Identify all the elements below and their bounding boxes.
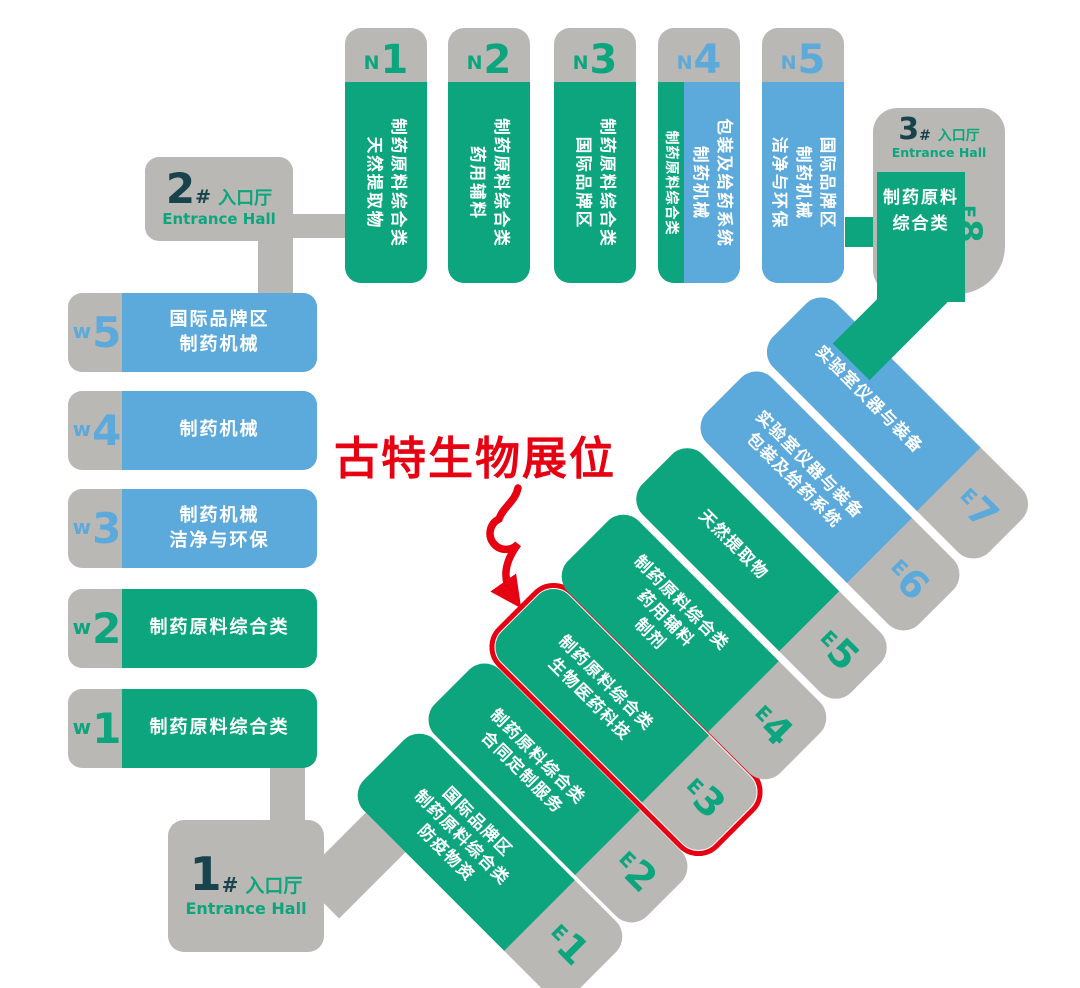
hall-w4-category-1: 制药机械 — [180, 418, 260, 442]
hall-n4-category-1: 包装及给药系统 — [712, 118, 736, 248]
hall-n5-label: N5 — [762, 28, 844, 82]
hall-n5-label-digit: 5 — [798, 43, 826, 77]
hall-w1-categories: 制药原料综合类 — [122, 689, 317, 768]
hall-n3: N3 制药原料综合类 国际品牌区 — [554, 28, 636, 283]
hall-n5-categories: 国际品牌区 制药机械 洁净与环保 — [767, 136, 839, 229]
hall-n4-label: N4 — [658, 28, 740, 82]
entrance-2-hash: # — [195, 188, 211, 207]
corridor-entrance2-to-n1 — [288, 214, 348, 238]
hall-n4-category-2: 制药机械 — [688, 118, 712, 248]
booth-annotation-title: 古特生物展位 — [334, 436, 616, 481]
hall-n3-categories: 制药原料综合类 国际品牌区 — [571, 118, 619, 248]
entrance-1-label-en: Entrance Hall — [185, 899, 306, 918]
hall-w5-categories: 国际品牌区 制药机械 — [122, 293, 317, 372]
hall-w4-label-letter: w — [73, 419, 91, 439]
entrance-hall-2-title: 2# 入口厅 — [166, 170, 272, 208]
hall-w4-label: w4 — [68, 391, 126, 470]
hall-n2-label: N2 — [448, 28, 530, 82]
hall-e8-label-letter: E — [958, 205, 977, 218]
hall-n4-categories: 包装及给药系统 制药机械 — [688, 118, 736, 248]
hall-e8-label: E8 — [954, 198, 1010, 250]
hall-w5-label-letter: w — [73, 321, 91, 341]
hall-w5-label-digit: 5 — [92, 315, 121, 351]
hall-n3-category-1: 制药原料综合类 — [595, 118, 619, 248]
entrance-1-hash: # — [222, 875, 239, 895]
hall-n5-category-1: 国际品牌区 — [815, 136, 839, 229]
hall-n1-category-2: 天然提取物 — [362, 118, 386, 248]
entrance-hall-1: 1# 入口厅 Entrance Hall — [168, 820, 324, 952]
hall-w4-label-digit: 4 — [92, 413, 121, 449]
hall-n2-label-digit: 2 — [484, 43, 512, 77]
hall-n4-label-letter: N — [677, 54, 693, 73]
hall-n1-label-digit: 1 — [381, 43, 409, 77]
hall-n2: N2 制药原料综合类 药用辅料 — [448, 28, 530, 283]
hall-n3-category-2: 国际品牌区 — [571, 118, 595, 248]
hall-e8-category-2: 综合类 — [893, 212, 950, 238]
entrance-1-number: 1 — [190, 854, 222, 895]
entrance-2-label-en: Entrance Hall — [162, 210, 276, 228]
entrance-hall-2: 2# 入口厅 Entrance Hall — [145, 157, 293, 241]
hall-n3-label-digit: 3 — [590, 43, 618, 77]
hall-n3-label: N3 — [554, 28, 636, 82]
hall-w1-label: w1 — [68, 689, 126, 768]
hall-w5-category-1: 国际品牌区 — [170, 308, 270, 332]
corridor-entrance2-to-w5 — [258, 236, 293, 296]
hall-n1-category-1: 制药原料综合类 — [386, 118, 410, 248]
hall-w3-label-digit: 3 — [92, 511, 121, 547]
hall-w1-label-digit: 1 — [92, 711, 121, 747]
entrance-2-label-zh: 入口厅 — [218, 191, 272, 207]
hall-w3-category-1: 制药机械 — [180, 504, 260, 528]
hall-w3-categories: 制药机械 洁净与环保 — [122, 489, 317, 568]
hall-w3-label: w3 — [68, 489, 126, 568]
hall-e5-category-1: 天然提取物 — [694, 506, 773, 585]
hall-w2-categories: 制药原料综合类 — [122, 589, 317, 668]
hall-w5-category-2: 制药机械 — [180, 333, 260, 357]
hall-n1-label-letter: N — [364, 54, 380, 73]
hall-w2: w2 制药原料综合类 — [68, 589, 317, 668]
hall-n4-label-digit: 4 — [694, 43, 722, 77]
hall-n1-categories: 制药原料综合类 天然提取物 — [362, 118, 410, 248]
hall-n4-strip-category: 制药原料综合类 — [661, 130, 681, 235]
hall-n1-label: N1 — [345, 28, 427, 82]
hall-w2-category-1: 制药原料综合类 — [150, 616, 290, 640]
hall-n5-category-3: 洁净与环保 — [767, 136, 791, 229]
entrance-3-number: 3 — [898, 116, 919, 143]
hall-e8-category-1: 制药原料 — [883, 186, 959, 212]
hall-n3-label-letter: N — [573, 54, 589, 73]
entrance-2-number: 2 — [166, 170, 195, 208]
entrance-3-label-zh: 入口厅 — [938, 130, 980, 143]
entrance-1-label-zh: 入口厅 — [245, 878, 302, 895]
entrance-3-label-en: Entrance Hall — [892, 145, 987, 160]
hall-e8-label-digit: 8 — [954, 219, 983, 243]
entrance-hall-1-title: 1# 入口厅 — [190, 854, 303, 895]
hall-w5-label: w5 — [68, 293, 126, 372]
hall-n5-label-letter: N — [781, 54, 797, 73]
hall-n2-category-1: 制药原料综合类 — [489, 118, 513, 248]
hall-w3: w3 制药机械 洁净与环保 — [68, 489, 317, 568]
hall-n2-label-letter: N — [467, 54, 483, 73]
hall-w4: w4 制药机械 — [68, 391, 317, 470]
hall-w2-label: w2 — [68, 589, 126, 668]
hall-w1-label-letter: w — [73, 717, 91, 737]
hall-n5-category-2: 制药机械 — [791, 136, 815, 229]
hall-w1: w1 制药原料综合类 — [68, 689, 317, 768]
entrance-3-hash: # — [919, 129, 931, 143]
hall-w2-label-letter: w — [73, 617, 91, 637]
hall-w3-label-letter: w — [73, 517, 91, 537]
entrance-hall-3-title: 3# 入口厅 — [898, 116, 980, 143]
hall-w4-categories: 制药机械 — [122, 391, 317, 470]
hall-w5: w5 国际品牌区 制药机械 — [68, 293, 317, 372]
hall-w1-category-1: 制药原料综合类 — [150, 716, 290, 740]
hall-n2-category-2: 药用辅料 — [465, 118, 489, 248]
hall-n2-categories: 制药原料综合类 药用辅料 — [465, 118, 513, 248]
hall-n1: N1 制药原料综合类 天然提取物 — [345, 28, 427, 283]
hall-n5: N5 国际品牌区 制药机械 洁净与环保 — [762, 28, 844, 283]
exhibition-floor-map: 2# 入口厅 Entrance Hall 1# 入口厅 Entrance Hal… — [0, 0, 1080, 988]
curved-loop-arrow-icon — [468, 480, 618, 630]
hall-n4: N4 制药原料综合类 包装及给药系统 制药机械 — [658, 28, 740, 283]
hall-w2-label-digit: 2 — [92, 611, 121, 647]
hall-w3-category-2: 洁净与环保 — [170, 529, 270, 553]
